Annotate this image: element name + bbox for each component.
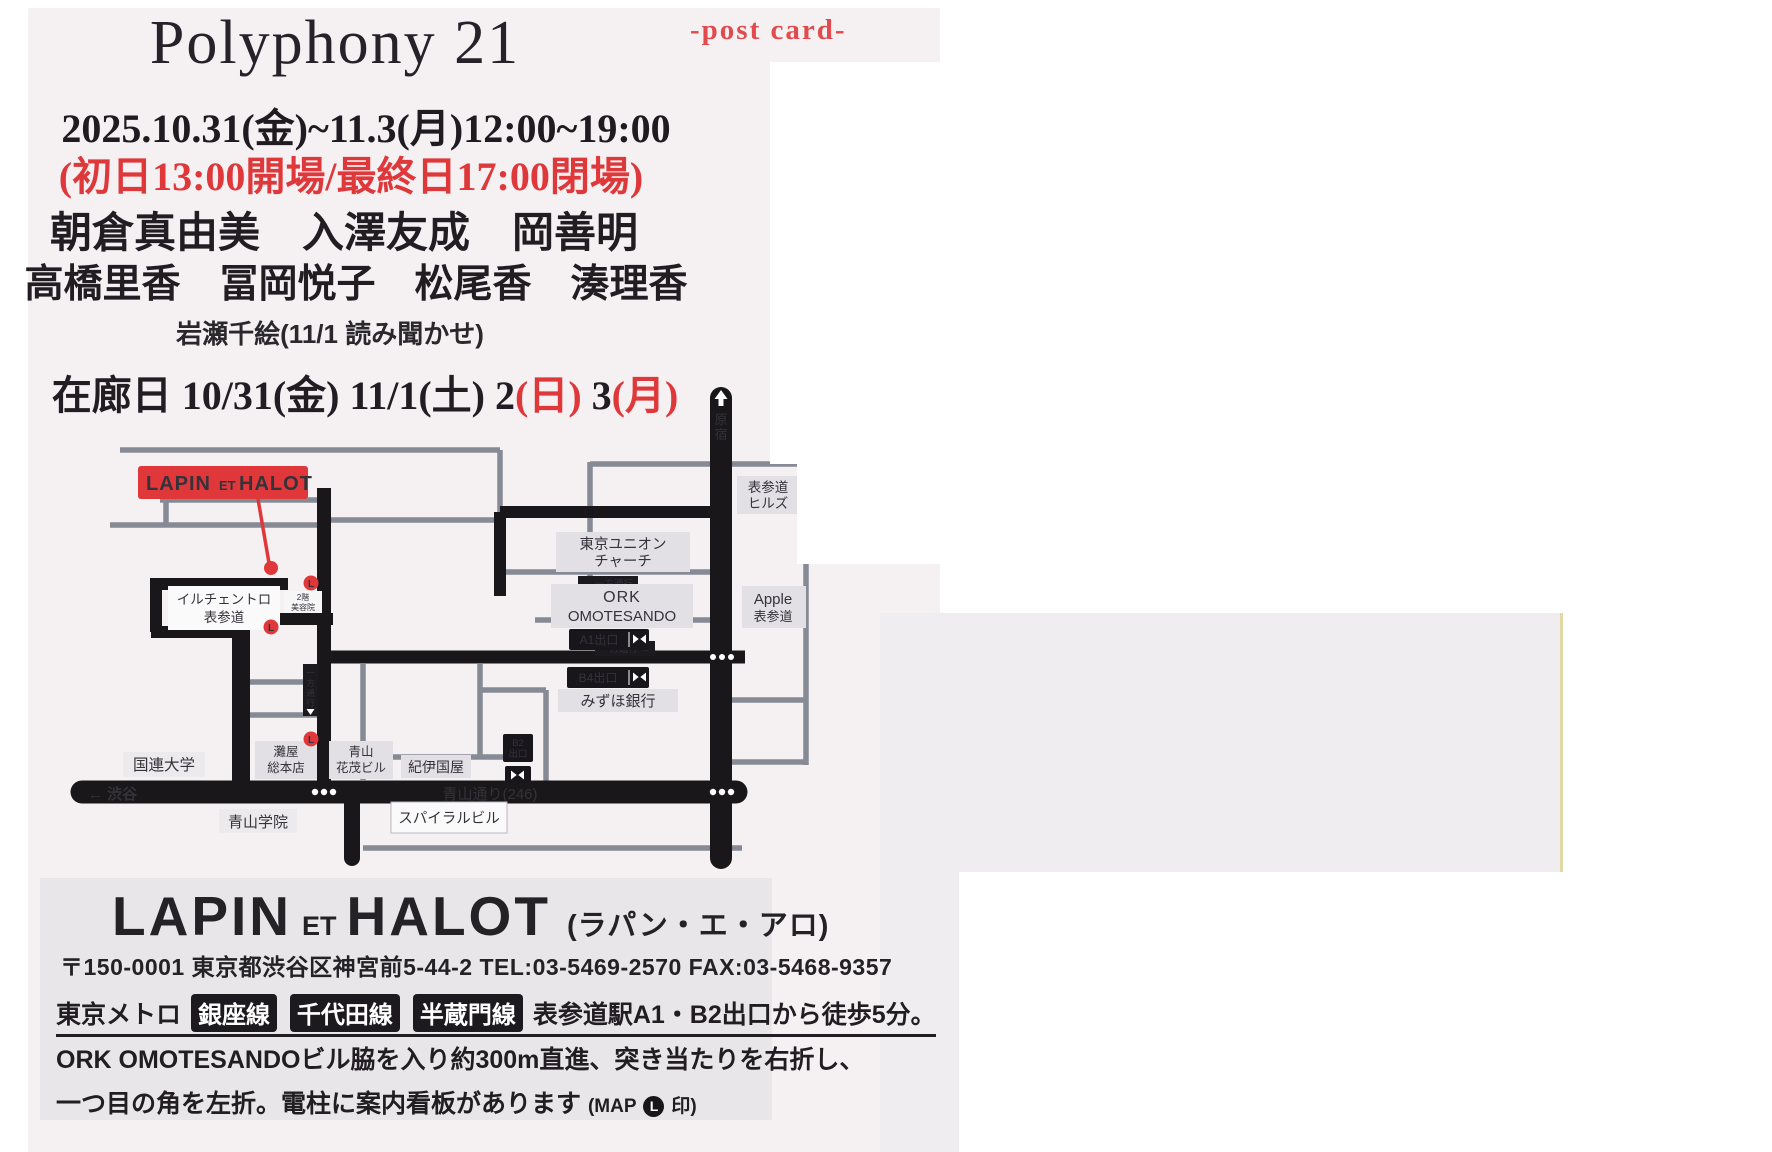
hanashige-line2: 花茂ビル [336, 760, 386, 775]
nadaya-line2: 総本店 [267, 761, 305, 775]
hills-line1: 表参道 [748, 479, 789, 495]
l-marker: L [308, 735, 314, 746]
map-label-union-church: 東京ユニオン チャーチ [556, 532, 690, 572]
map-mark-suffix: 印) [671, 1096, 696, 1117]
metro-line-badge-ginza: 銀座線 [191, 994, 277, 1032]
oneway-v-char2: 方 [306, 678, 315, 688]
map-label-kokuren: 国連大学 [123, 752, 205, 777]
il-centro-line1: イルチェントロ [177, 592, 272, 607]
map-badge-exit-a1: A1出口 [569, 629, 649, 650]
map-label-aoyama-gakuin: 青山学院 [219, 809, 297, 833]
map-label-kinokuniya: 紀伊国屋 [401, 755, 471, 778]
map-l-mark-icon: L [643, 1096, 664, 1117]
access-line2: ORK OMOTESANDOビル脇を入り約300m直進、突き当たりを右折し、 [56, 1040, 864, 1076]
scanner-edge-line [1560, 613, 1563, 872]
scanner-background-band [880, 613, 1563, 872]
exit-b2-line1: B2 [512, 738, 524, 749]
gallery-address: 〒150-0001 東京都渋谷区神宮前5-44-2 TEL:03-5469-25… [60, 948, 892, 982]
map-label-spiral: スパイラルビル [391, 802, 507, 833]
venue-badge-lapin: LAPIN [146, 473, 211, 495]
kinokuniya-label: 紀伊国屋 [408, 759, 464, 775]
map-label-ork: ORK OMOTESANDO [551, 584, 693, 628]
map-badge-exit-b4: B4出口 [567, 667, 649, 688]
spiral-label: スパイラルビル [398, 810, 500, 827]
aoyama-gakuin-label: 青山学院 [228, 813, 288, 831]
metro-prefix: 東京メトロ [56, 1001, 181, 1029]
venue-badge-et: ET [219, 478, 236, 493]
exit-a1-label: A1出口 [580, 633, 619, 647]
gallery-name-lapin: LAPIN [112, 884, 292, 948]
access-line1: 東京メトロ 銀座線 千代田線 半蔵門線 表参道駅A1・B2出口から徒歩5分。 [56, 994, 936, 1032]
redaction-block [770, 62, 970, 464]
map-label-hanashige: 青山 花茂ビル [329, 741, 393, 779]
shibuya-direction-label: ← 渋谷 [88, 785, 138, 803]
oneway-v-char1: 一 [306, 668, 315, 678]
l-marker: L [308, 579, 314, 590]
artist-names-line1: 朝倉真由美 入澤友成 岡善明 [50, 199, 620, 260]
metro-line-badge-hanzomon: 半蔵門線 [413, 994, 523, 1032]
apple-line2: 表参道 [753, 609, 792, 624]
opening-notice: (初日13:00開場/最終日17:00閉場) [26, 144, 676, 202]
salon-line2: 美容院 [291, 602, 315, 612]
artist-names-line2: 高橋里香 冨岡悦子 松尾香 湊理香 [16, 253, 696, 309]
l-marker: L [268, 623, 274, 634]
scanned-postcard-page: Polyphony 21 -post card- 2025.10.31(金)~1… [0, 0, 1772, 1152]
union-church-line2: チャーチ [594, 554, 652, 570]
exit-b4-label: B4出口 [579, 671, 618, 685]
salon-line1: 2階 [297, 592, 309, 602]
map-label-salon: 2階 美容院 [284, 591, 322, 613]
venue-badge-halot: HALOT [239, 473, 313, 495]
hanashige-line1: 青山 [348, 745, 373, 759]
apple-line1: Apple [754, 591, 792, 608]
access-line3-main: 一つ目の角を左折。電柱に案内看板があります [56, 1090, 588, 1118]
map-label-omotesando-hills: 表参道 ヒルズ [737, 476, 799, 514]
exit-b2-line2: 出口 [508, 748, 527, 760]
oneway-badge-vertical: 一 方 通 行 [303, 664, 318, 716]
access-line3: 一つ目の角を左折。電柱に案内看板があります (MAP L 印) [56, 1084, 697, 1120]
hills-line2: ヒルズ [748, 496, 789, 511]
venue-location-dot [264, 561, 278, 575]
oneway-v-char4: 行 [306, 698, 315, 708]
harajuku-direction-sign: 原 宿 [714, 390, 727, 442]
exhibition-title: Polyphony 21 [100, 8, 570, 79]
map-badge-exit-b2: B2 出口 [503, 734, 533, 783]
map-label-mizuho: みずほ銀行 [558, 689, 678, 712]
metro-line-badge-chiyoda: 千代田線 [290, 994, 400, 1032]
redaction-block [797, 464, 960, 564]
map-label-il-centro: イルチェントロ 表参道 [168, 586, 280, 630]
nadaya-line1: 灘屋 [273, 745, 298, 759]
reading-event-line: 岩瀬千絵(11/1 読み聞かせ) [80, 314, 580, 351]
il-centro-line2: 表参道 [204, 609, 245, 625]
union-church-line1: 東京ユニオン [580, 536, 667, 553]
kokuren-label: 国連大学 [133, 756, 195, 774]
gallery-name-et: ET [302, 911, 337, 942]
gallery-name-halot: HALOT [347, 884, 551, 948]
ork-line2: OMOTESANDO [568, 608, 676, 625]
postcard-label: -post card- [690, 14, 847, 47]
gallery-name: LAPIN ET HALOT (ラパン・エ・アロ) [112, 884, 829, 948]
map-mark-prefix: (MAP [588, 1096, 637, 1117]
station-walk-text: 表参道駅A1・B2出口から徒歩5分。 [533, 1001, 936, 1029]
map-label-nadaya: 灘屋 総本店 [255, 741, 317, 779]
ork-line1: ORK [603, 589, 641, 606]
oneway-v-char3: 通 [306, 688, 315, 698]
aoyama-dori-label: 青山通り(246) [442, 786, 537, 803]
map-label-apple: Apple 表参道 [742, 586, 806, 628]
venue-map: 原 宿 ← 渋谷 青山通り(246) ← 一方通行 一方通行 → 一 方 通 行… [50, 378, 820, 880]
harajuku-char1: 原 [714, 412, 727, 427]
gallery-name-kana: (ラパン・エ・アロ) [567, 902, 829, 944]
harajuku-char2: 宿 [714, 427, 727, 442]
mizuho-label: みずほ銀行 [580, 693, 655, 710]
